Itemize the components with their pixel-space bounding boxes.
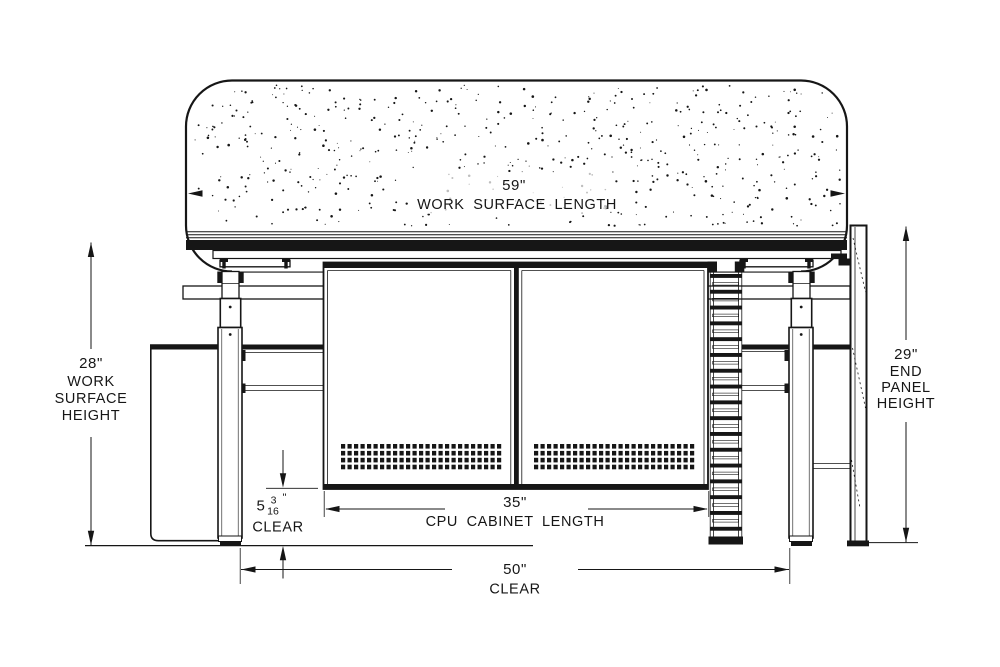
right-leg bbox=[788, 272, 814, 547]
end-panel bbox=[847, 226, 869, 547]
bottom-clearance-whole: 5 bbox=[257, 498, 266, 515]
arrow-right-icon bbox=[694, 506, 708, 512]
drawing-canvas: 59" WORK SURFACE LENGTH 28" WORK SURFACE… bbox=[0, 0, 1000, 667]
cable-ladder bbox=[708, 262, 745, 545]
bottom-clearance-unit: " bbox=[283, 492, 287, 504]
end-panel-height-label: PANEL bbox=[881, 380, 930, 396]
arrow-down-icon bbox=[280, 473, 286, 487]
dim-bottom-clearance: 5 3 16 " CLEAR bbox=[252, 450, 318, 579]
width-clearance-value: 50" bbox=[503, 561, 527, 578]
cpu-cabinet-length-value: 35" bbox=[503, 494, 527, 511]
work-surface-height-label: HEIGHT bbox=[62, 408, 120, 424]
end-panel-glide bbox=[847, 541, 869, 547]
right-foot bbox=[791, 541, 812, 546]
ladder-rungs bbox=[711, 274, 742, 531]
arrow-up-icon bbox=[280, 546, 286, 560]
dim-width-clearance: 50" CLEAR bbox=[240, 548, 790, 598]
work-surface-length-value: 59" bbox=[502, 177, 526, 194]
work-surface-height-label: SURFACE bbox=[55, 391, 128, 407]
arrow-left-icon bbox=[241, 566, 255, 572]
arrow-down-icon bbox=[88, 531, 94, 546]
cpu-cabinet-length-label: CPU CABINET LENGTH bbox=[426, 514, 605, 530]
cpu-cabinet bbox=[324, 263, 709, 490]
arrow-right-icon bbox=[775, 566, 789, 572]
dim-work-surface-height: 28" WORK SURFACE HEIGHT bbox=[55, 243, 128, 546]
end-panel-height-value: 29" bbox=[894, 346, 918, 363]
arrow-down-icon bbox=[903, 528, 909, 543]
rail-bar bbox=[186, 240, 847, 250]
dim-end-panel-height: 29" END PANEL HEIGHT bbox=[869, 227, 935, 543]
left-foot bbox=[220, 541, 241, 546]
end-panel-body bbox=[851, 226, 867, 546]
end-panel-height-label: HEIGHT bbox=[877, 396, 935, 412]
left-leg bbox=[217, 272, 243, 547]
width-clearance-label: CLEAR bbox=[489, 582, 540, 598]
dim-cpu-cabinet-length: 35" CPU CABINET LENGTH bbox=[324, 491, 709, 530]
end-panel-height-label: END bbox=[890, 364, 922, 380]
workstation-elevation-drawing: 59" WORK SURFACE LENGTH 28" WORK SURFACE… bbox=[0, 0, 1000, 667]
end-bracket bbox=[831, 254, 847, 260]
work-surface-height-value: 28" bbox=[79, 355, 103, 372]
arrow-left-icon bbox=[325, 506, 339, 512]
bottom-clearance-label: CLEAR bbox=[252, 520, 303, 536]
arrow-up-icon bbox=[88, 243, 94, 258]
rail-channel bbox=[213, 251, 841, 259]
work-surface-length-label: WORK SURFACE LENGTH bbox=[417, 197, 617, 213]
bottom-clearance-denominator: 16 bbox=[267, 506, 279, 518]
arrow-up-icon bbox=[903, 227, 909, 242]
work-surface-height-label: WORK bbox=[67, 374, 115, 390]
cabinet-divider bbox=[514, 263, 519, 490]
